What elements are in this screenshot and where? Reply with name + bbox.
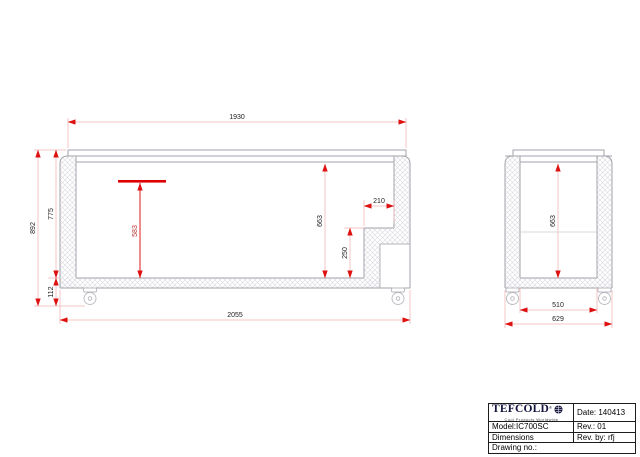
- max-load-line: [118, 180, 166, 183]
- title-block-row-2: Model:IC700SC Rev.: 01: [489, 421, 635, 432]
- globe-icon: [554, 405, 563, 416]
- model-label: Model:IC700SC: [492, 422, 548, 431]
- side-insulation-hatch: [505, 156, 612, 288]
- front-view: 1930 2055 892 775 112 663 250 210 583: [30, 114, 410, 324]
- front-caster-right: [392, 288, 405, 305]
- drawing-no-label: Drawing no.:: [492, 443, 537, 452]
- side-dimension-labels: 663 510 629: [550, 215, 564, 323]
- dim-front-step-width: 210: [373, 198, 385, 205]
- side-lid: [505, 150, 612, 162]
- dimensions-cell: Dimensions: [489, 433, 573, 443]
- front-caster-left: [84, 288, 97, 305]
- dim-front-interior-depth: 663: [317, 215, 324, 227]
- dim-front-load-line-depth: 583: [132, 225, 139, 237]
- dim-front-overall-height: 892: [30, 222, 37, 234]
- tefcold-logo: TEFCOLD: [492, 404, 549, 416]
- front-insulation-hatch: [60, 156, 410, 288]
- compressor-compartment: [380, 244, 410, 288]
- side-caster-right: [598, 288, 611, 305]
- rev-label: Rev.: 01: [577, 422, 606, 431]
- rev-by-label: Rev. by: rfj: [577, 433, 615, 442]
- dim-front-lid-width: 1930: [229, 114, 245, 121]
- date-label: Date: 140413: [577, 408, 625, 417]
- drawing-sheet: 1930 2055 892 775 112 663 250 210 583: [0, 0, 640, 457]
- front-lid: [68, 150, 406, 162]
- front-body-outline: [60, 156, 410, 288]
- title-block-row-1: TEFCOLD ® Cool Products Worldwide Date: …: [489, 404, 635, 421]
- rev-by-cell: Rev. by: rfj: [573, 433, 635, 443]
- drawing-no-cell: Drawing no.:: [489, 443, 635, 453]
- dim-side-interior-width: 510: [552, 302, 564, 309]
- model-cell: Model:IC700SC: [489, 422, 573, 432]
- side-body-outline: [505, 156, 612, 288]
- title-block-row-3: Dimensions Rev. by: rfj: [489, 432, 635, 443]
- dim-side-interior-depth: 663: [550, 215, 557, 227]
- dim-side-overall-width: 629: [552, 316, 564, 323]
- title-block: TEFCOLD ® Cool Products Worldwide Date: …: [488, 403, 636, 454]
- freezer-technical-drawing: 1930 2055 892 775 112 663 250 210 583: [0, 0, 640, 457]
- dim-front-caster-height: 112: [48, 286, 55, 297]
- title-block-row-4: Drawing no.:: [489, 442, 635, 453]
- dim-front-overall-length: 2055: [227, 312, 243, 319]
- side-caster-left: [506, 288, 519, 305]
- registered-mark: ®: [549, 406, 552, 410]
- dimensions-label: Dimensions: [492, 433, 534, 442]
- side-view: 663 510 629: [505, 150, 612, 328]
- dim-front-body-height: 775: [48, 208, 55, 220]
- logo-cell: TEFCOLD ® Cool Products Worldwide: [489, 404, 573, 421]
- date-cell: Date: 140413: [573, 404, 635, 421]
- side-dimension-lines: [505, 164, 612, 324]
- dim-front-step-height: 250: [342, 247, 349, 259]
- rev-cell: Rev.: 01: [573, 422, 635, 432]
